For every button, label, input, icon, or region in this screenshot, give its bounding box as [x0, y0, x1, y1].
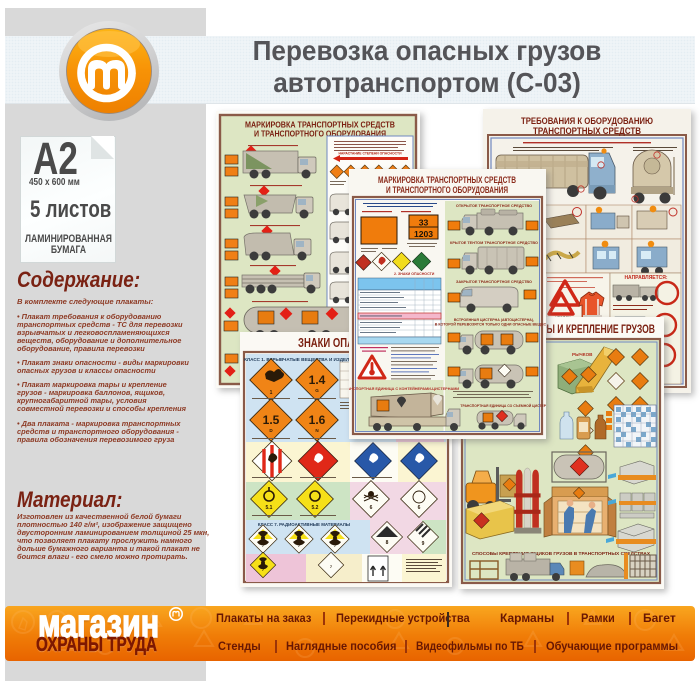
svg-text:КРЫТОЕ ТЕНТОМ ТРАНСПОРТНОЕ СРЕ: КРЫТОЕ ТЕНТОМ ТРАНСПОРТНОЕ СРЕДСТВО: [450, 241, 538, 245]
svg-text:1.4: 1.4: [309, 373, 326, 387]
svg-text:ТРАНСПОРТНАЯ ЕДИНИЦА С КОНТЕЙН: ТРАНСПОРТНАЯ ЕДИНИЦА С КОНТЕЙНЕРАМИ-ЦИСТ…: [349, 387, 459, 391]
svg-text:1.6: 1.6: [309, 413, 326, 427]
svg-text:1: 1: [270, 390, 273, 396]
svg-text:НАРАСТАНИЕ СТЕПЕНИ ОПАСНОСТИ: НАРАСТАНИЕ СТЕПЕНИ ОПАСНОСТИ: [338, 152, 402, 156]
svg-text:В КОТОРОЙ ПЕРЕВОЗЯТСЯ ТОЛЬКО О: В КОТОРОЙ ПЕРЕВОЗЯТСЯ ТОЛЬКО ОДНИ ОПАСНЫ…: [435, 323, 546, 327]
svg-text:КЛАСС 1. ВЗРЫВЧАТЫЕ ВЕЩЕСТВА И: КЛАСС 1. ВЗРЫВЧАТЫЕ ВЕЩЕСТВА И ИЗДЕЛИЯ: [244, 357, 356, 362]
svg-text:ВСТРОЕННАЯ ЦИСТЕРНА (АВТОЦИСТЕ: ВСТРОЕННАЯ ЦИСТЕРНА (АВТОЦИСТЕРНА),: [454, 318, 534, 322]
svg-text:1203: 1203: [414, 229, 433, 239]
svg-text:6: 6: [418, 505, 421, 511]
svg-text:ТРАНСПОРТНЫХ СРЕДСТВ: ТРАНСПОРТНЫХ СРЕДСТВ: [533, 125, 641, 136]
svg-text:И ТРАНСПОРТНОГО ОБОРУДОВАНИЯ: И ТРАНСПОРТНОГО ОБОРУДОВАНИЯ: [386, 185, 508, 195]
svg-text:МАРКИРОВКА ТРАНСПОРТНЫХ СРЕДСТ: МАРКИРОВКА ТРАНСПОРТНЫХ СРЕДСТВ: [378, 175, 516, 185]
svg-text:ТРАНСПОРТНАЯ ЕДИНИЦА СО СЪЕМНО: ТРАНСПОРТНАЯ ЕДИНИЦА СО СЪЕМНОЙ ЦИСТЕРНО…: [460, 404, 546, 408]
svg-text:РЫЧКОВ: РЫЧКОВ: [572, 352, 593, 357]
svg-text:НАПРАВЛЯЕТСЯ:: НАПРАВЛЯЕТСЯ:: [624, 275, 667, 281]
svg-text:2. ЗНАКИ ОПАСНОСТИ: 2. ЗНАКИ ОПАСНОСТИ: [394, 272, 435, 276]
svg-text:5.1: 5.1: [266, 505, 273, 511]
svg-text:G: G: [315, 388, 319, 393]
svg-text:ЗАКРЫТОЕ ТРАНСПОРТНОЕ СРЕДСТВО: ЗАКРЫТОЕ ТРАНСПОРТНОЕ СРЕДСТВО: [456, 280, 532, 284]
svg-text:ОТКРЫТОЕ ТРАНСПОРТНОЕ СРЕДСТВО: ОТКРЫТОЕ ТРАНСПОРТНОЕ СРЕДСТВО: [456, 204, 532, 208]
svg-text:5.2: 5.2: [312, 505, 319, 511]
svg-text:СПОСОБЫ КРЕПЛЕНИЯ ЯЩИКОВ ГРУЗО: СПОСОБЫ КРЕПЛЕНИЯ ЯЩИКОВ ГРУЗОВ В ТРАНСП…: [472, 551, 651, 557]
svg-text:33: 33: [419, 218, 429, 228]
svg-text:9: 9: [422, 541, 425, 547]
svg-text:8: 8: [386, 540, 389, 546]
svg-text:МАРКИРОВКА ТРАНСПОРТНЫХ СРЕДСТ: МАРКИРОВКА ТРАНСПОРТНЫХ СРЕДСТВ: [245, 121, 395, 130]
svg-text:1.5: 1.5: [263, 413, 280, 427]
svg-text:6: 6: [370, 505, 373, 511]
